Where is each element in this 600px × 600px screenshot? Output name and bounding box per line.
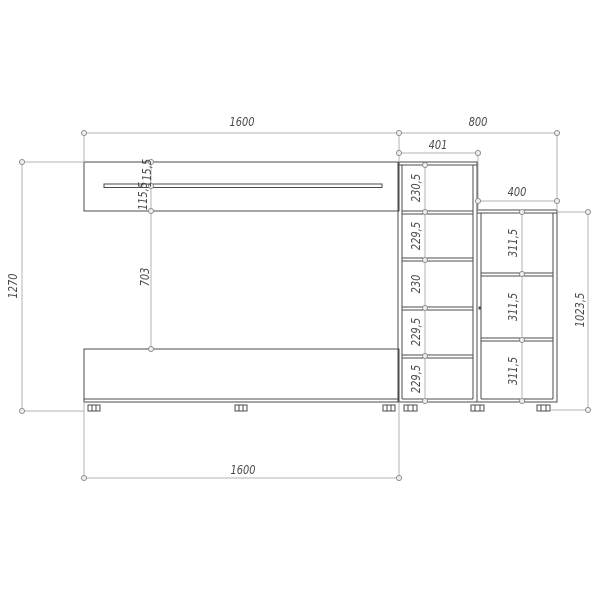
wall-shelf [104,184,382,188]
furniture-dimension-drawing: 1600 800 401 400 1600 1270 115,5 115,5 7… [0,0,600,600]
dimension-lines [22,133,588,478]
right-shelf-unit [477,210,557,402]
dimension-markers [20,131,591,481]
furniture-feet [88,405,550,411]
center-shelf-column [398,162,477,402]
door-handle-dot [479,307,482,310]
base-cabinet [84,349,399,402]
drawing-canvas [0,0,600,600]
upper-wall-panel [84,162,399,211]
